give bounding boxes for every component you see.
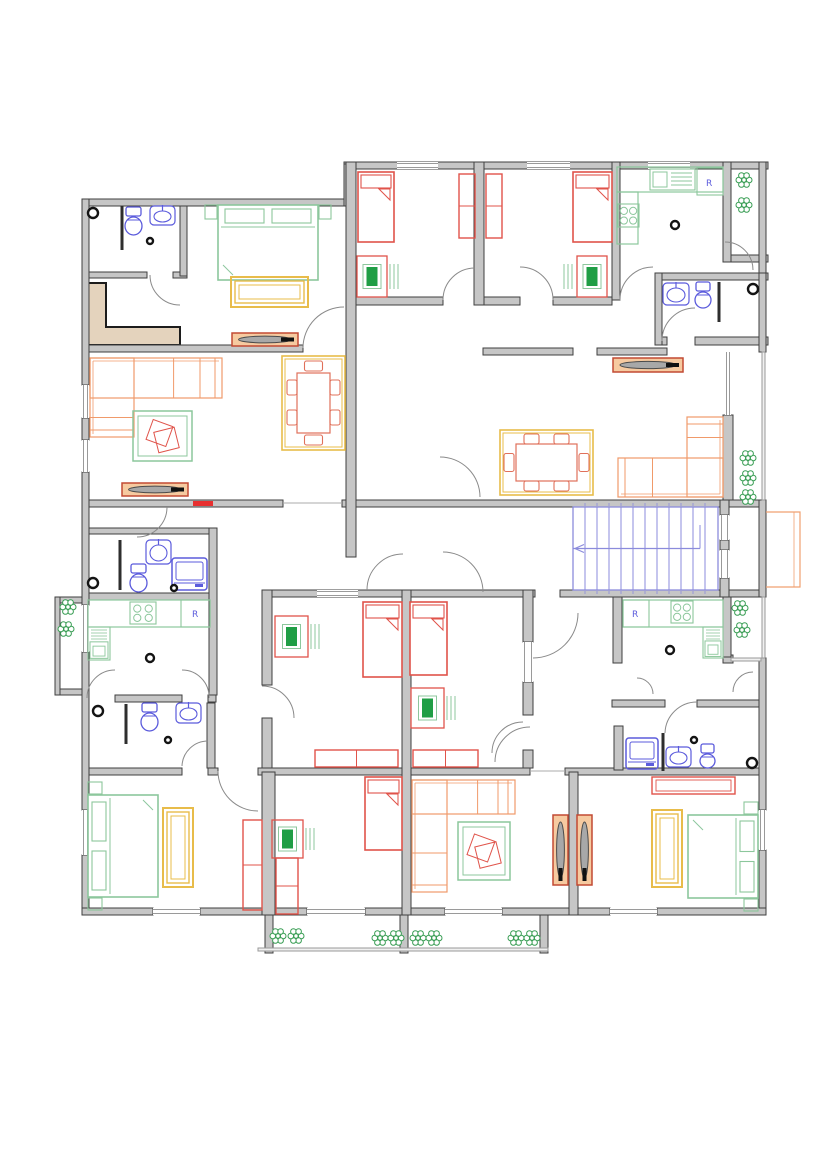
plant: [738, 606, 742, 610]
balcony-railing: [258, 948, 548, 951]
toilet-tank: [142, 703, 157, 712]
door-swing-arc: [665, 702, 697, 733]
rug-inner: [138, 416, 187, 456]
fridge-label: R: [706, 179, 712, 189]
knob-symbol: [748, 284, 758, 294]
wall-segment: [697, 700, 766, 707]
wall-segment: [480, 297, 520, 305]
chair: [579, 454, 589, 472]
double-bed: [218, 205, 318, 280]
toilet-bowl: [700, 754, 715, 768]
rug-pillow: [475, 842, 501, 868]
door-swing-arc: [182, 670, 209, 698]
sink-basin: [154, 211, 171, 222]
wardrobe-yellow-inner: [235, 281, 304, 303]
door-swing-arc: [303, 307, 344, 348]
burner: [683, 604, 690, 611]
balcony-railing: [762, 352, 765, 500]
wall-segment: [342, 500, 766, 507]
nightstand: [205, 205, 217, 219]
sink-basin: [653, 172, 667, 187]
entry-hall-zone: [87, 283, 180, 345]
rug: [458, 822, 510, 880]
chair: [305, 435, 323, 445]
wall-segment: [523, 682, 533, 715]
sofa-armrest: [215, 358, 222, 398]
single-bed: [363, 602, 402, 677]
wall-segment: [560, 590, 766, 597]
rug-pillow: [154, 427, 179, 452]
door-swing-arc: [150, 275, 180, 305]
door-swing-arc: [443, 552, 483, 592]
chair: [504, 454, 514, 472]
plant: [378, 936, 382, 940]
desk-chair: [283, 830, 293, 848]
wall-segment: [346, 162, 356, 557]
knob-symbol: [88, 208, 98, 218]
knob-symbol: [146, 654, 154, 662]
chair: [330, 410, 340, 425]
dresser: [652, 777, 735, 794]
door-swing-arc: [440, 457, 480, 497]
double-bed: [688, 815, 758, 898]
wall-segment: [262, 590, 272, 685]
wall-segment: [613, 597, 622, 663]
nightstand: [744, 802, 758, 814]
wall-segment: [82, 593, 215, 600]
wall-segment: [759, 850, 766, 908]
knob-symbol: [147, 238, 153, 244]
wall-segment: [759, 500, 766, 597]
wall-segment: [695, 337, 768, 345]
desk-chair: [423, 699, 433, 717]
wall-segment: [180, 206, 187, 276]
knob-symbol: [747, 758, 757, 768]
plant: [276, 934, 280, 938]
wardrobe-yellow-inner: [656, 814, 678, 883]
wall-segment: [523, 750, 533, 768]
wall-segment: [723, 597, 731, 657]
single-bed: [410, 602, 447, 675]
wall-segment: [82, 528, 215, 534]
corner-sofa: [90, 358, 222, 398]
door-swing-arc: [492, 722, 523, 753]
wall-segment: [723, 162, 731, 262]
balcony-railing: [731, 658, 761, 661]
washer-door: [176, 562, 203, 580]
burner: [134, 614, 141, 621]
chair: [305, 361, 323, 371]
burner: [674, 604, 681, 611]
wall-segment: [262, 772, 275, 915]
corner-sofa-arm: [412, 780, 447, 892]
door-swing-arc: [637, 678, 653, 694]
single-bed: [365, 777, 402, 850]
wall-segment: [87, 272, 147, 278]
burner: [620, 207, 627, 214]
door-swing-arc: [662, 308, 695, 341]
window: [725, 352, 731, 415]
plant: [432, 936, 436, 940]
toilet-bowl: [695, 292, 711, 308]
wall-segment: [350, 297, 443, 305]
oven-door: [708, 645, 718, 654]
sofa-armrest: [618, 458, 625, 497]
sink-basin: [670, 752, 687, 764]
wall-segment: [553, 297, 612, 305]
rug: [133, 411, 192, 461]
knob-symbol: [691, 737, 697, 743]
chair: [524, 481, 539, 491]
door-swing-arc: [620, 267, 653, 300]
door-swing-arc: [182, 741, 208, 766]
dining-table: [516, 444, 577, 481]
rug-pillow: [467, 834, 495, 862]
wardrobe-yellow-inner: [167, 812, 189, 883]
door-swing-arc: [218, 771, 258, 811]
single-bed: [358, 172, 394, 242]
knob-symbol: [93, 706, 103, 716]
chair: [554, 434, 569, 444]
wall-segment: [540, 915, 548, 953]
tv-speaker: [559, 868, 563, 881]
balcony-railing: [762, 597, 765, 658]
knob-symbol: [171, 585, 177, 591]
knob-symbol: [666, 646, 674, 654]
sink-basin: [180, 708, 197, 720]
nightstand: [88, 782, 102, 794]
toilet-tank: [131, 564, 146, 573]
plant: [66, 605, 70, 609]
wardrobe-yellow-inner2: [239, 285, 300, 299]
sink-basin: [667, 288, 685, 302]
chair: [524, 434, 539, 444]
sofa-armrest: [687, 417, 723, 424]
wall-segment: [115, 695, 182, 702]
wall-segment: [265, 590, 535, 597]
burner: [630, 217, 637, 224]
wall-segment: [612, 700, 665, 707]
knob-symbol: [88, 578, 98, 588]
wall-segment: [597, 348, 667, 355]
washer-button: [646, 763, 654, 766]
chair: [330, 380, 340, 395]
desk-chair: [287, 628, 297, 646]
plant: [530, 936, 534, 940]
wardrobe-yellow-inner2: [660, 818, 674, 879]
wall-segment: [759, 658, 766, 810]
corner-sofa: [618, 458, 723, 497]
knob-symbol: [165, 737, 171, 743]
toilet-tank: [126, 207, 141, 216]
chair: [287, 380, 297, 395]
wall-segment: [723, 415, 733, 500]
wall-segment: [502, 908, 610, 915]
dining-table: [297, 373, 330, 433]
door-swing-arc: [367, 554, 403, 590]
door-swing-arc: [533, 613, 578, 658]
burner: [134, 605, 141, 612]
wall-segment: [720, 578, 729, 597]
wall-segment: [565, 768, 766, 775]
single-bed: [573, 172, 612, 242]
wardrobe-yellow-inner2: [171, 816, 185, 879]
fridge-label: R: [632, 610, 638, 620]
wall-segment: [82, 908, 153, 915]
tv-speaker: [171, 488, 184, 492]
door-swing-arc: [87, 670, 115, 698]
fridge-label: R: [192, 610, 198, 620]
chair: [287, 410, 297, 425]
plant: [64, 627, 68, 631]
door-swing-arc: [733, 672, 753, 692]
sink-basin: [150, 545, 167, 561]
tv-speaker: [583, 868, 587, 881]
washer-button: [195, 584, 203, 587]
desk-chair: [367, 268, 377, 286]
wall-segment: [82, 500, 283, 507]
burner: [145, 614, 152, 621]
sofa-armrest: [412, 885, 447, 892]
floor-plan-svg: RRR: [0, 0, 828, 1171]
wall-segment: [82, 418, 89, 440]
entry-threshold: [193, 501, 213, 506]
stove: [130, 602, 156, 624]
oven-column: [88, 627, 110, 660]
plant: [394, 936, 398, 940]
wall-segment: [655, 273, 662, 345]
wall-segment: [759, 273, 766, 352]
wall-segment: [614, 726, 623, 770]
door-swing-arc: [520, 267, 553, 300]
plant: [746, 456, 750, 460]
toilet-tank: [696, 282, 710, 291]
tv-speaker: [666, 363, 679, 367]
plant: [416, 936, 420, 940]
floor-plan-page: RRR: [0, 0, 828, 1171]
burner: [620, 217, 627, 224]
wall-segment: [258, 768, 530, 775]
wall-segment: [662, 273, 768, 280]
burner: [683, 613, 690, 620]
rug-pillow: [146, 420, 173, 447]
wall-segment: [82, 768, 182, 775]
wall-segment: [483, 348, 573, 355]
plant: [742, 178, 746, 182]
plant: [746, 495, 750, 499]
sofa-armrest: [508, 780, 515, 814]
wall-segment: [720, 540, 729, 550]
wall-segment: [262, 718, 272, 768]
washer-door: [630, 742, 654, 759]
wall-segment: [82, 199, 89, 385]
plant: [742, 203, 746, 207]
burner: [674, 613, 681, 620]
sofa-armrest: [90, 430, 134, 437]
wall-segment: [208, 768, 218, 775]
corner-sofa-arm: [687, 417, 723, 497]
chair: [554, 481, 569, 491]
double-bed: [88, 795, 158, 897]
wall-segment: [207, 703, 215, 768]
plant: [294, 934, 298, 938]
plant: [746, 476, 750, 480]
plant: [740, 628, 744, 632]
plant: [514, 936, 518, 940]
fire-escape-outline: [766, 512, 800, 587]
knob-symbol: [671, 221, 679, 229]
oven-column: [703, 627, 723, 658]
wall-segment: [759, 162, 766, 273]
wall-segment: [720, 500, 729, 515]
corner-sofa: [412, 780, 515, 814]
door-swing-arc: [262, 686, 294, 718]
wall-segment: [55, 597, 60, 695]
nightstand: [319, 205, 331, 219]
burner: [630, 207, 637, 214]
oven-door: [93, 646, 105, 656]
dresser-inner: [656, 780, 731, 791]
burner: [145, 605, 152, 612]
door-swing-arc: [443, 268, 475, 300]
tv-speaker: [281, 338, 294, 342]
toilet-tank: [701, 744, 714, 753]
desk-chair: [587, 268, 597, 286]
wall-segment: [612, 162, 620, 300]
wall-segment: [523, 590, 533, 642]
